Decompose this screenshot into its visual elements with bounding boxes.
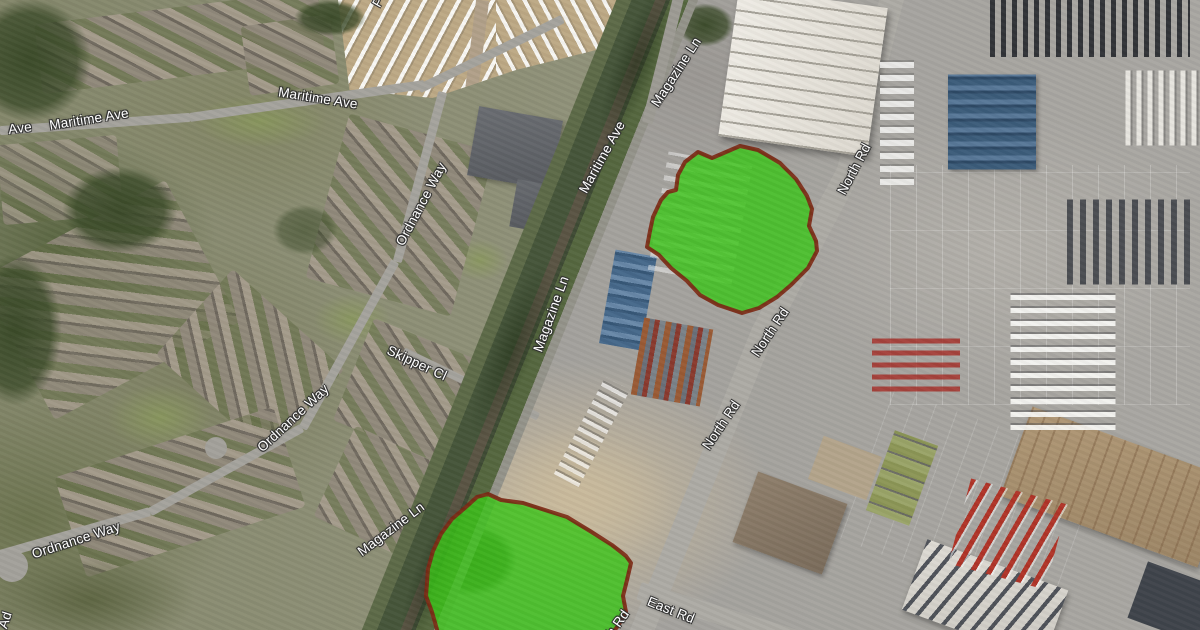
highlighted-parcel-north — [647, 146, 817, 313]
highlighted-parcel-south — [426, 494, 631, 630]
highlight-overlay — [0, 0, 1200, 630]
satellite-map[interactable]: Maritime AveAveMaritime AveMaritime AveM… — [0, 0, 1200, 630]
